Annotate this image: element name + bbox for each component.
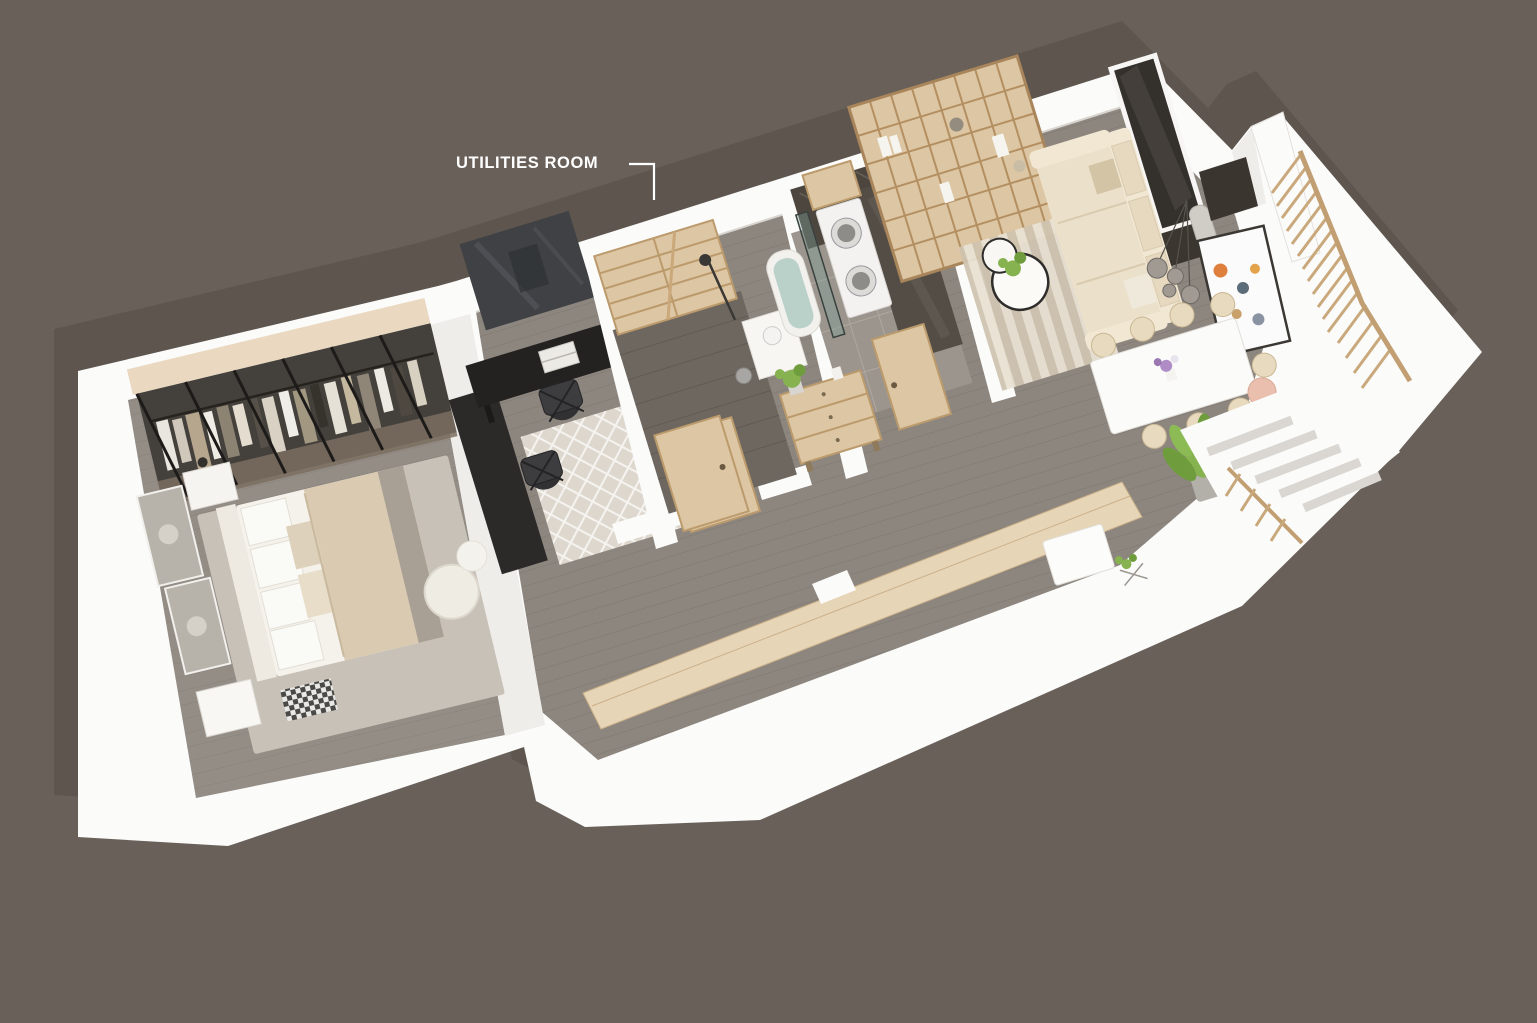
floor-plan-svg [0,0,1537,1023]
floor-plan-render: UTILITIES ROOM [0,0,1537,1023]
utilities-room-label: UTILITIES ROOM [456,154,598,173]
